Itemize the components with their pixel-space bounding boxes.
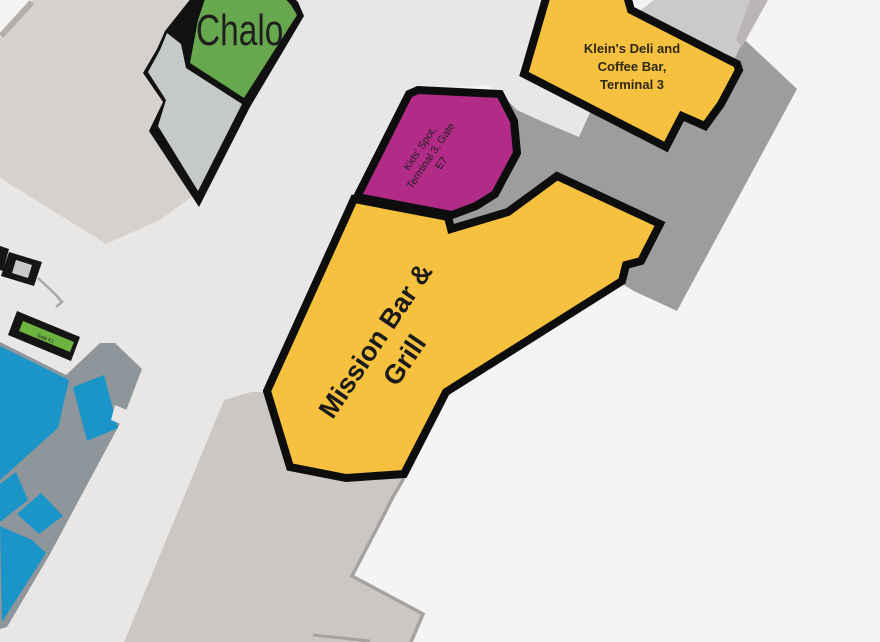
svg-text:Chalo: Chalo — [196, 7, 283, 55]
svg-text:Terminal 3: Terminal 3 — [600, 77, 664, 92]
svg-text:Coffee Bar,: Coffee Bar, — [598, 59, 667, 74]
svg-text:Klein's Deli and: Klein's Deli and — [584, 41, 680, 56]
